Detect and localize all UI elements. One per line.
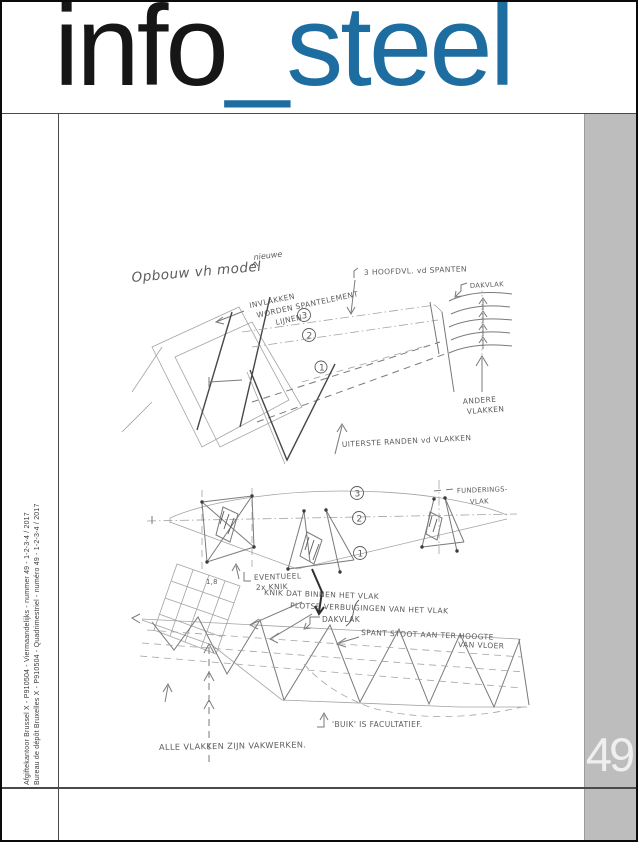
masthead-rule (2, 113, 636, 114)
masthead: info_steel (2, 2, 636, 113)
middle-drawing: 3 2 1 FUNDERINGS- VLAK (147, 480, 517, 592)
tip-arrowhead (132, 614, 140, 623)
label-funderingsvlak-2: VLAK (470, 497, 489, 506)
svg-text:3: 3 (302, 312, 308, 322)
footer-rule (2, 787, 636, 789)
left-margin-rule (58, 114, 59, 842)
label-buik: 'BUIK' IS FACULTATIEF. (332, 720, 423, 729)
label-funderingsvlak-1: FUNDERINGS- (457, 485, 508, 495)
label-uiterste-randen: UITERSTE RANDEN vd VLAKKEN (342, 433, 472, 449)
dakvlak-bracket (461, 283, 467, 291)
sketch-title-note: nieuwe (253, 250, 283, 262)
circled-1-top: 1 (315, 361, 327, 374)
bottom-form (132, 614, 529, 717)
logo-word-info: info (54, 0, 226, 110)
logo-word-steel: _steel (226, 0, 512, 110)
label-eventueel-1: EVENTUEEL (254, 571, 302, 582)
label-verbuigingen: PLOTSE VERBUIGINGEN VAN HET VLAK (290, 601, 449, 616)
circled-3-mid: 3 (351, 487, 364, 500)
magazine-cover-page: info_steel 49 Afgiftekantoor Brussel X -… (0, 0, 638, 842)
hand-sketch: Opbouw vh model nieuwe INVLAKKEN WORDEN … (58, 114, 584, 787)
label-dakvlak-bottom: DAKVLAK (322, 615, 361, 624)
spant-arrow (339, 637, 359, 643)
hull-bottom-edge (170, 519, 507, 569)
page-number: 49 (582, 731, 636, 778)
label-spant-2: VAN VLOER (458, 640, 505, 651)
knik-pointer-2-head (270, 633, 279, 643)
top-drawing: Opbouw vh model nieuwe INVLAKKEN WORDEN … (122, 250, 512, 464)
dakvlak2-arrow (306, 624, 310, 628)
truss-right (420, 496, 464, 552)
truss-left (200, 494, 255, 563)
plane-stack (449, 286, 512, 392)
dakvlak-arrow (456, 291, 461, 296)
buik-dashed-curve (304, 664, 527, 717)
label-alle-vlakken: ALLE VLAKKEN ZIJN VAKWERKEN. (159, 739, 307, 752)
dakvlak2-bracket (310, 617, 320, 624)
svg-text:1: 1 (358, 550, 364, 560)
svg-text:3: 3 (355, 490, 361, 500)
sketch-title: Opbouw vh model (131, 259, 262, 286)
knik-pointer-1 (252, 602, 302, 624)
buik-arrow (317, 715, 324, 727)
bottom-drawing: 1,8 (132, 564, 529, 762)
magazine-logo: info_steel (54, 0, 512, 104)
hoofdvl-bracket (354, 268, 358, 278)
eventueel-bracket (244, 572, 251, 581)
label-maat: 1,8 (206, 578, 218, 586)
svg-text:1: 1 (319, 364, 325, 374)
label-andere-2: VLAKKEN (467, 404, 505, 416)
svg-text:2: 2 (357, 515, 363, 525)
label-hoofdvlakken: 3 HOOFDVL. vd SPANTEN (364, 264, 467, 277)
label-dakvlak-top: DAKVLAK (470, 280, 505, 290)
circled-2-mid: 2 (353, 512, 366, 525)
svg-text:2: 2 (307, 332, 313, 342)
hull-top-edge (170, 491, 507, 518)
